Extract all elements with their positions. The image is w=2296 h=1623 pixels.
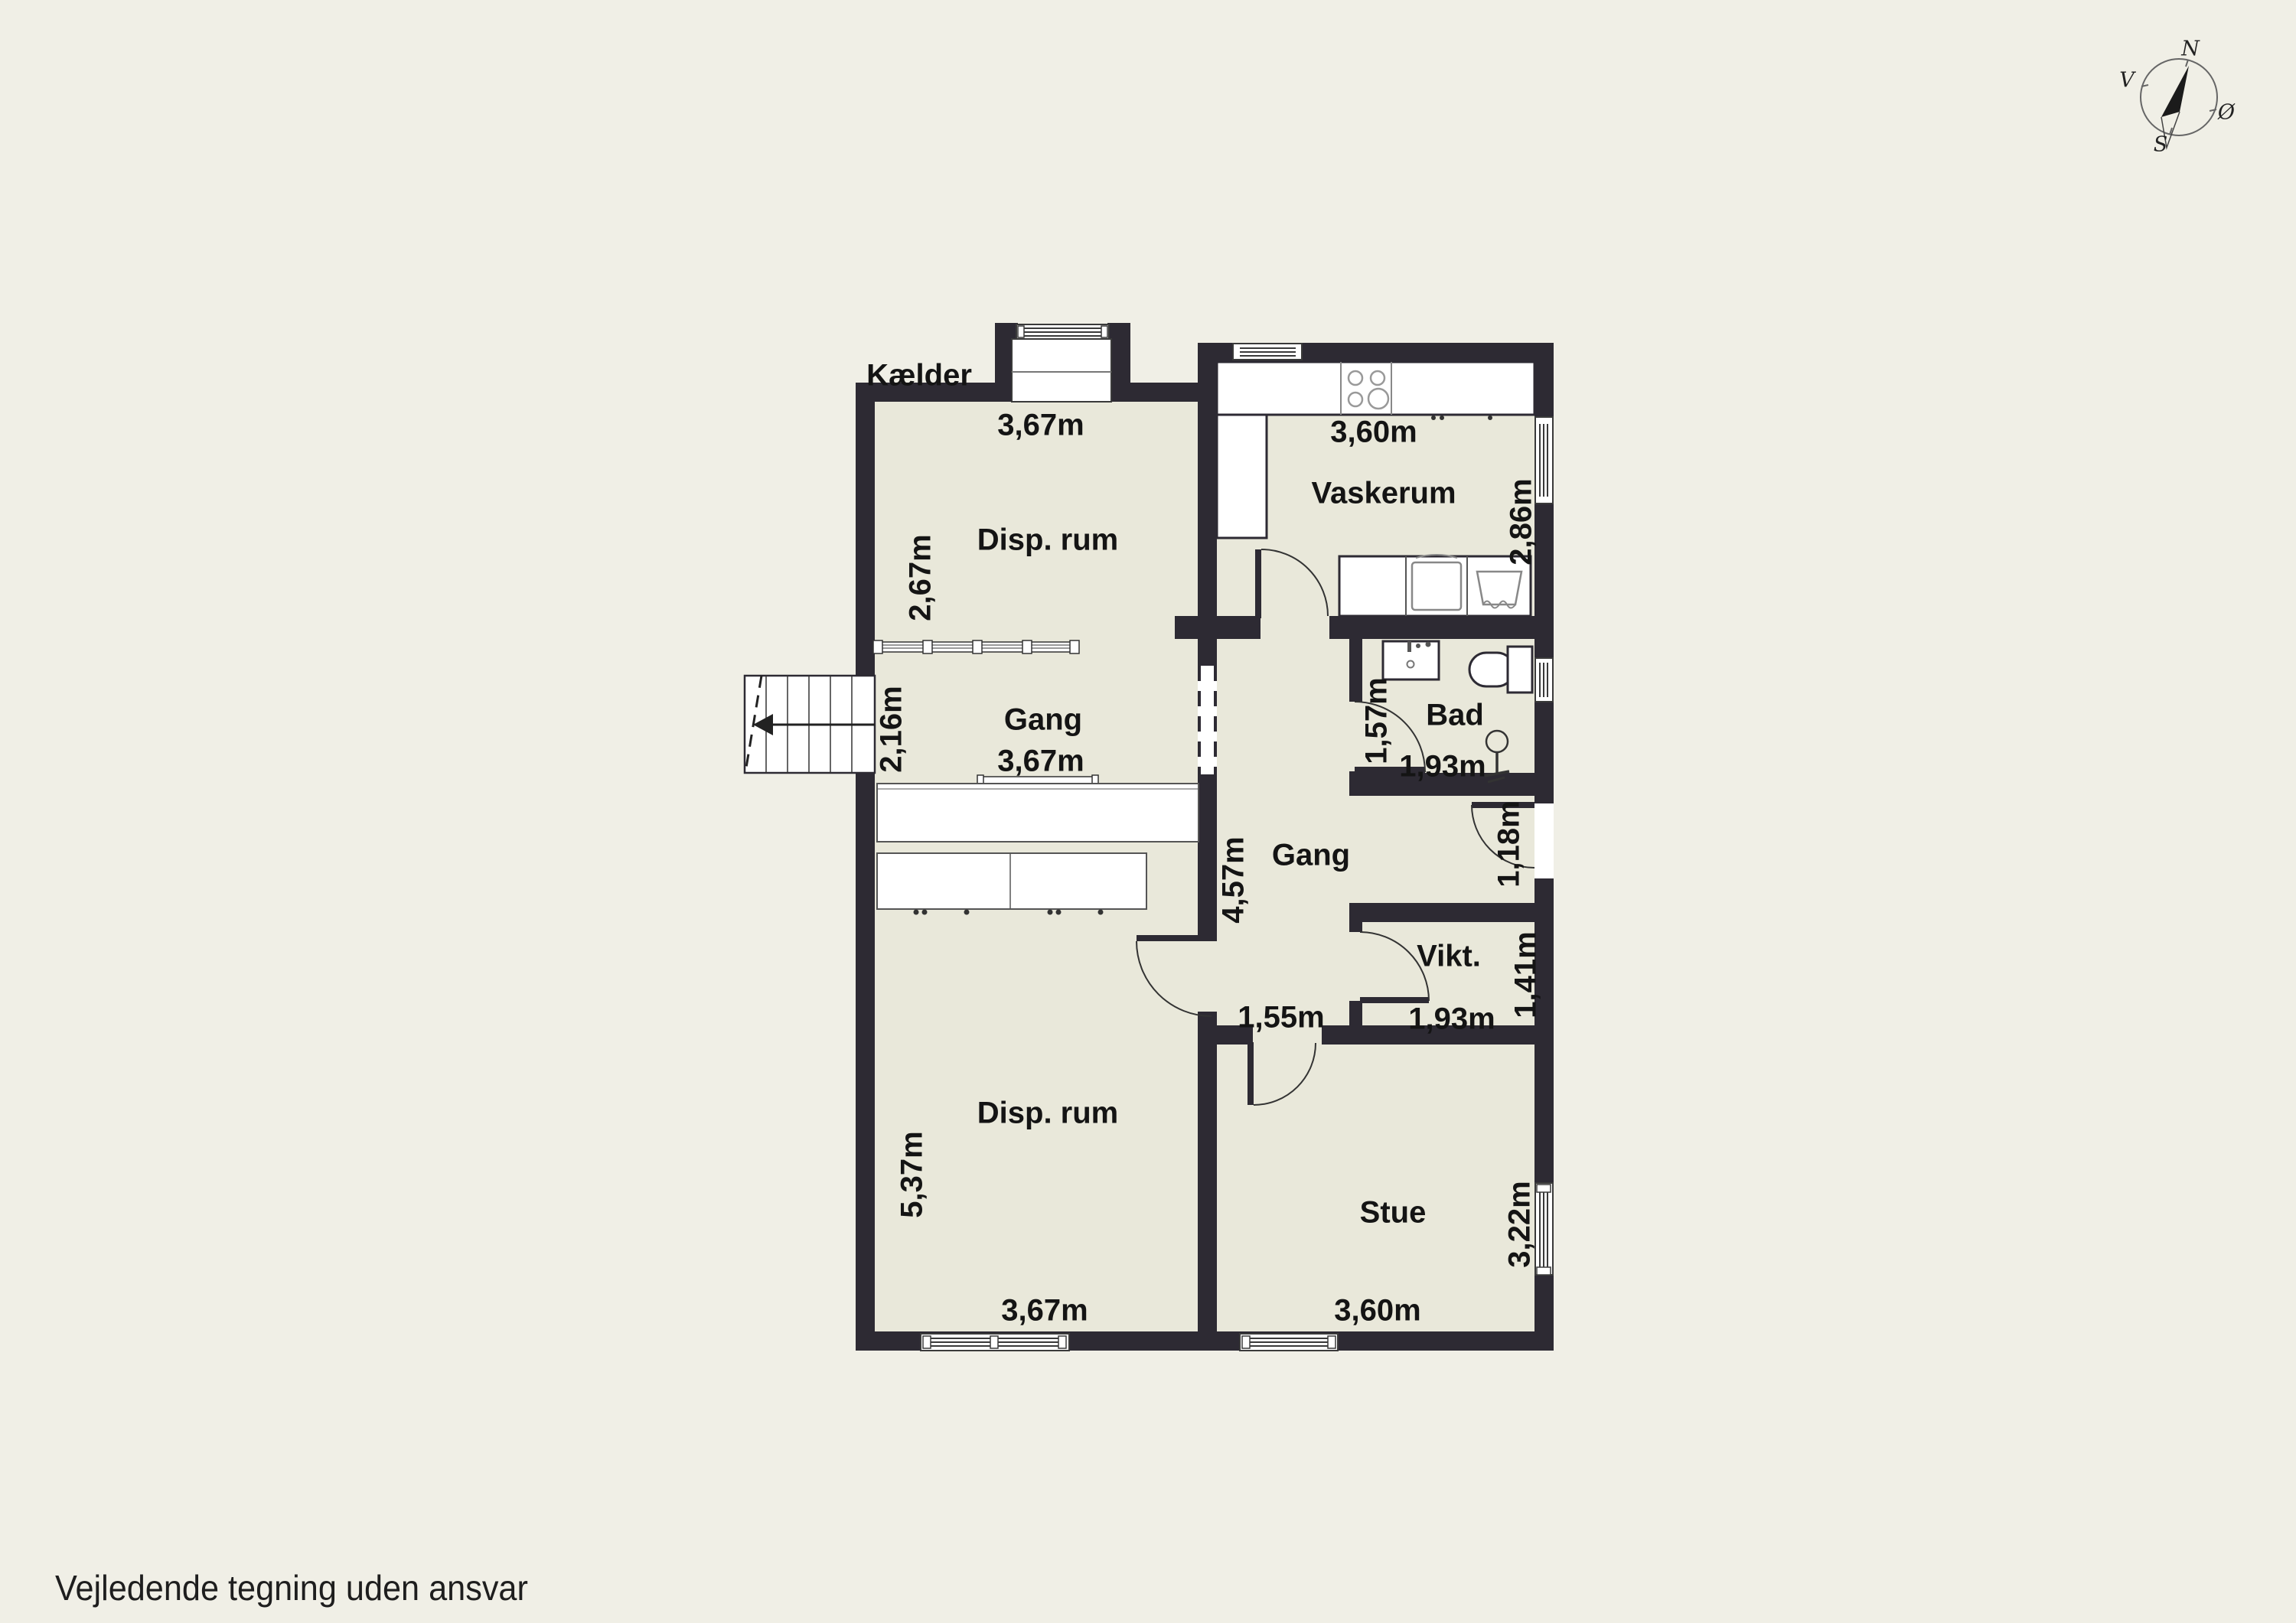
dim-vaskerum-depth: 2,86m [1505,478,1539,565]
radiator [873,640,1079,653]
wardrobe [877,784,1199,842]
window-vaskerum-top [1233,344,1302,360]
room-label-stue: Stue [1360,1196,1427,1230]
compass-north-label: N [2181,37,2200,61]
opening-vikt-door [1349,932,1362,1001]
window-bad-right [1535,658,1553,702]
dim-stue-width: 3,60m [1334,1294,1420,1328]
wall-middle [1198,362,1217,1331]
dim-bad-width: 1,93m [1399,750,1486,784]
dim-gang-passage-width: 1,55m [1238,1001,1324,1035]
opening-entry-door [1534,803,1554,878]
room-label-gang-right: Gang [1272,839,1350,873]
window-disp-bottom [921,1334,1069,1351]
kitchen-counter [1217,362,1534,420]
window-stue-right [1535,1183,1553,1275]
stairs-icon [745,676,875,773]
floor-plan [0,0,2296,1623]
room-label-disp-rum-top: Disp. rum [977,523,1118,558]
kitchen-counter-side [1217,415,1267,538]
dim-vaskerum-width: 3,60m [1330,416,1417,450]
dim-vikt-width: 1,93m [1408,1002,1495,1037]
opening-middle-door [1198,941,1217,1012]
page-title: Kælder [866,359,972,393]
compass-west-label: V [2119,69,2135,93]
room-label-bad: Bad [1426,699,1484,733]
compass-east-label: Ø [2218,101,2235,125]
toilet-icon [1469,647,1532,693]
disclaimer-text: Vejledende tegning uden ansvar [55,1567,528,1608]
dim-vikt-depth: 1,41m [1509,931,1544,1018]
wall-vikt-top [1349,903,1534,922]
room-label-vikt: Vikt. [1417,940,1481,974]
dim-disp-top-width: 3,67m [997,409,1084,443]
dim-disp-top-depth: 2,67m [904,534,938,621]
room-label-vaskerum: Vaskerum [1311,477,1456,511]
dim-gang-right-length: 4,57m [1217,836,1251,923]
compass-icon [2141,59,2217,148]
cabinet [877,853,1146,915]
room-label-gang-left: Gang [1004,703,1082,738]
dim-gang-left-width: 3,67m [997,745,1084,779]
dim-disp-bottom-width: 3,67m [1001,1294,1088,1328]
sink-icon [1383,641,1439,680]
room-label-disp-rum-bottom: Disp. rum [977,1097,1118,1131]
dim-disp-bottom-depth: 5,37m [895,1131,930,1217]
laundry-counter [1339,555,1531,616]
opening-vaskerum-door [1261,616,1329,639]
window-stue-bottom [1240,1334,1338,1351]
dim-stue-depth: 3,22m [1503,1181,1538,1267]
compass-south-label: S [2154,133,2168,157]
window-bay-top [1012,324,1111,402]
dim-stair-width: 2,16m [875,686,909,772]
dim-bad-depth: 1,57m [1360,677,1394,764]
dim-entry-width: 1,18m [1492,800,1527,887]
wall-stub [1175,616,1198,639]
wall-left [856,383,875,1351]
